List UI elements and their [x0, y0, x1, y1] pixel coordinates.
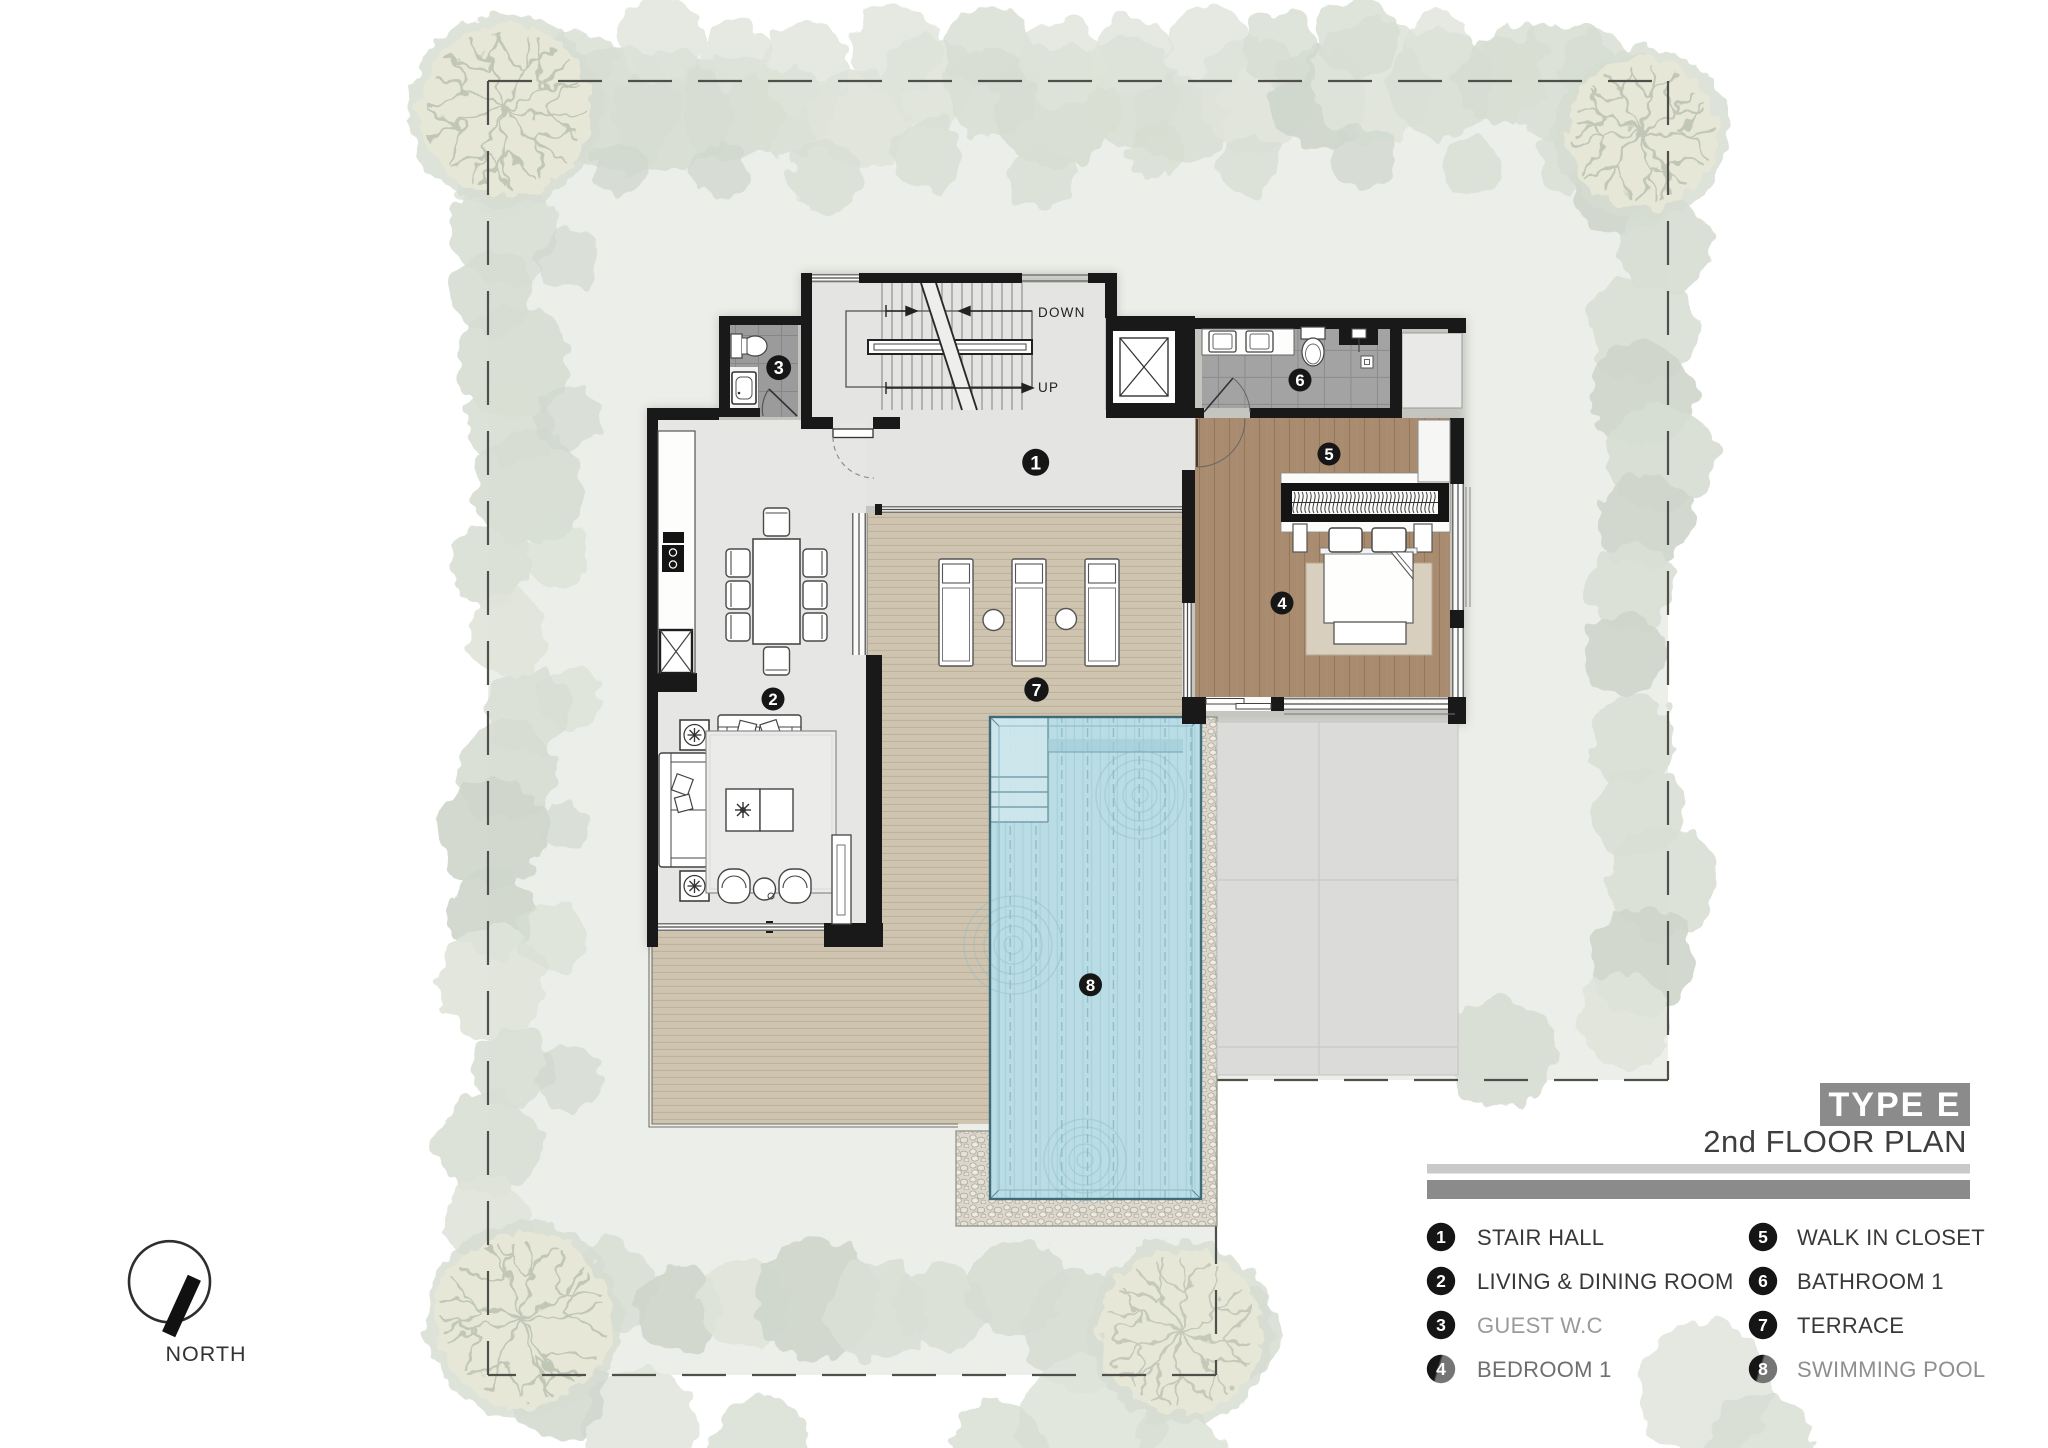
svg-text:TERRACE: TERRACE: [1797, 1313, 1904, 1338]
svg-text:4: 4: [1436, 1359, 1446, 1379]
svg-text:NORTH: NORTH: [165, 1342, 246, 1366]
svg-text:5: 5: [1324, 445, 1333, 464]
svg-text:2: 2: [768, 690, 777, 709]
svg-text:3: 3: [1436, 1315, 1446, 1335]
svg-text:8: 8: [1758, 1359, 1768, 1379]
svg-text:7: 7: [1032, 680, 1042, 700]
svg-text:7: 7: [1758, 1315, 1768, 1335]
svg-text:BATHROOM 1: BATHROOM 1: [1797, 1269, 1944, 1294]
svg-text:1: 1: [1436, 1227, 1446, 1247]
svg-text:5: 5: [1758, 1227, 1768, 1247]
svg-text:DOWN: DOWN: [1038, 305, 1086, 320]
svg-text:SWIMMING POOL: SWIMMING POOL: [1797, 1357, 1985, 1382]
svg-text:STAIR HALL: STAIR HALL: [1477, 1225, 1604, 1250]
svg-text:2: 2: [1436, 1271, 1446, 1291]
svg-text:2nd FLOOR PLAN: 2nd FLOOR PLAN: [1703, 1124, 1967, 1159]
svg-text:6: 6: [1295, 371, 1304, 390]
svg-text:WALK IN CLOSET: WALK IN CLOSET: [1797, 1225, 1985, 1250]
svg-text:1: 1: [1030, 452, 1041, 474]
svg-text:6: 6: [1758, 1271, 1768, 1291]
svg-text:4: 4: [1277, 594, 1287, 613]
svg-text:TYPE E: TYPE E: [1829, 1086, 1962, 1124]
svg-text:UP: UP: [1038, 380, 1059, 395]
svg-text:3: 3: [774, 358, 784, 378]
svg-text:LIVING & DINING ROOM: LIVING & DINING ROOM: [1477, 1269, 1734, 1294]
svg-text:GUEST W.C: GUEST W.C: [1477, 1313, 1603, 1338]
svg-text:BEDROOM 1: BEDROOM 1: [1477, 1357, 1612, 1382]
svg-text:8: 8: [1086, 976, 1095, 995]
